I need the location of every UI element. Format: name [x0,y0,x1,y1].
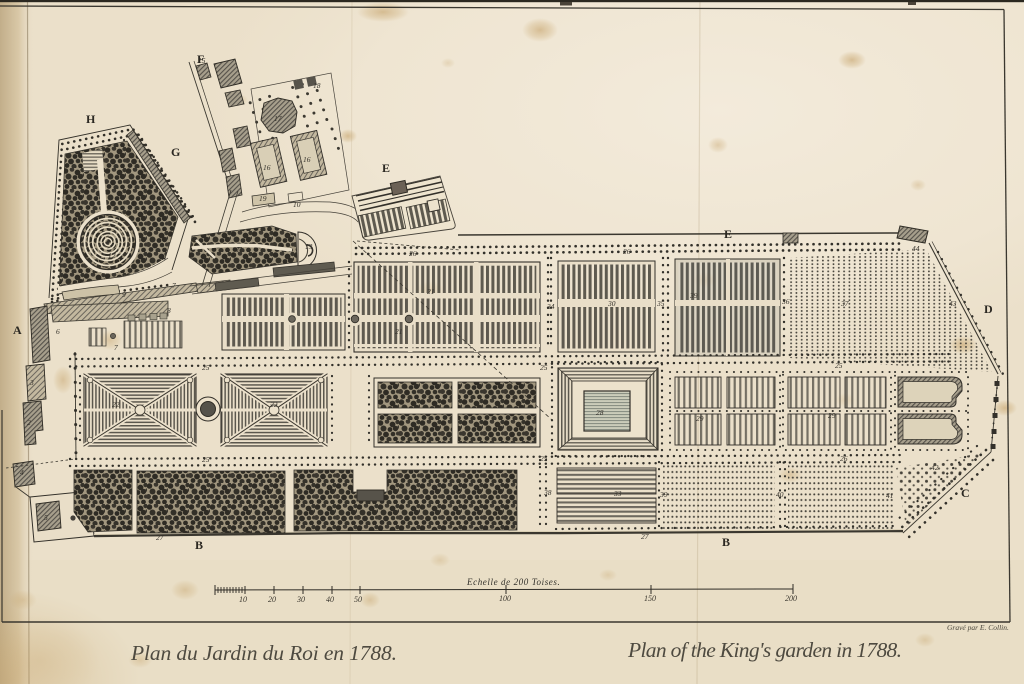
svg-text:200: 200 [785,594,797,603]
svg-text:35: 35 [656,299,665,308]
svg-text:25: 25 [540,454,548,463]
svg-text:25: 25 [202,363,210,372]
svg-text:7: 7 [172,281,176,290]
svg-text:42: 42 [931,463,939,472]
svg-text:5: 5 [44,513,48,522]
svg-text:20: 20 [268,595,276,604]
svg-text:50: 50 [354,595,362,604]
svg-text:28: 28 [596,408,604,417]
svg-text:25: 25 [202,455,210,464]
svg-text:16: 16 [303,155,311,164]
svg-text:44: 44 [912,244,920,253]
svg-text:H: H [86,112,96,126]
svg-text:33: 33 [613,489,622,498]
svg-text:39: 39 [689,291,698,300]
svg-text:40: 40 [776,490,784,499]
svg-text:B: B [722,535,730,549]
svg-text:150: 150 [644,594,656,603]
svg-text:4: 4 [20,468,24,477]
svg-text:9: 9 [122,290,126,299]
svg-text:G: G [171,145,180,159]
svg-text:3: 3 [29,378,34,387]
svg-text:39: 39 [659,490,668,499]
svg-text:25: 25 [540,363,548,372]
svg-text:2: 2 [27,418,31,427]
svg-text:27: 27 [156,533,164,542]
svg-text:18: 18 [313,81,321,90]
svg-text:38: 38 [543,488,552,497]
svg-text:21: 21 [395,327,403,336]
svg-text:27: 27 [641,532,649,541]
svg-text:26: 26 [623,247,631,256]
svg-text:22: 22 [112,400,120,409]
svg-text:43: 43 [949,299,957,308]
svg-text:A: A [13,323,22,337]
svg-text:30: 30 [607,299,616,308]
svg-text:10: 10 [239,595,247,604]
svg-text:36: 36 [781,297,790,306]
svg-text:D: D [984,302,993,316]
svg-text:7: 7 [114,343,118,352]
svg-text:41: 41 [886,491,894,500]
svg-text:Gravé par E. Collin.: Gravé par E. Collin. [947,623,1009,632]
svg-text:37: 37 [840,299,849,308]
svg-text:Plan du Jardin du Roi en 1788.: Plan du Jardin du Roi en 1788. [130,641,397,665]
svg-text:C: C [961,486,970,500]
svg-text:13: 13 [305,242,313,251]
svg-text:19: 19 [259,194,267,203]
svg-text:8: 8 [167,306,171,315]
svg-text:21: 21 [427,287,435,296]
svg-text:25: 25 [835,361,843,370]
svg-text:16: 16 [263,163,271,172]
svg-text:17: 17 [274,114,282,123]
svg-text:34: 34 [546,302,555,311]
svg-text:6: 6 [56,327,60,336]
svg-text:F: F [197,52,204,66]
svg-text:Plan of the King's garden in 1: Plan of the King's garden in 1788. [627,638,902,662]
svg-text:29: 29 [696,414,704,423]
svg-text:E: E [724,227,732,241]
svg-text:B: B [195,538,203,552]
svg-text:10: 10 [293,200,301,209]
svg-text:40: 40 [326,595,334,604]
svg-text:11: 11 [236,245,243,254]
svg-text:12: 12 [108,251,116,260]
svg-text:30: 30 [296,595,305,604]
svg-text:29: 29 [828,411,836,420]
svg-text:26: 26 [409,249,417,258]
svg-text:100: 100 [499,594,511,603]
svg-text:E: E [382,161,390,175]
svg-text:26: 26 [840,454,848,463]
svg-text:Echelle de 200 Toises.: Echelle de 200 Toises. [466,577,560,587]
svg-text:22: 22 [270,400,278,409]
